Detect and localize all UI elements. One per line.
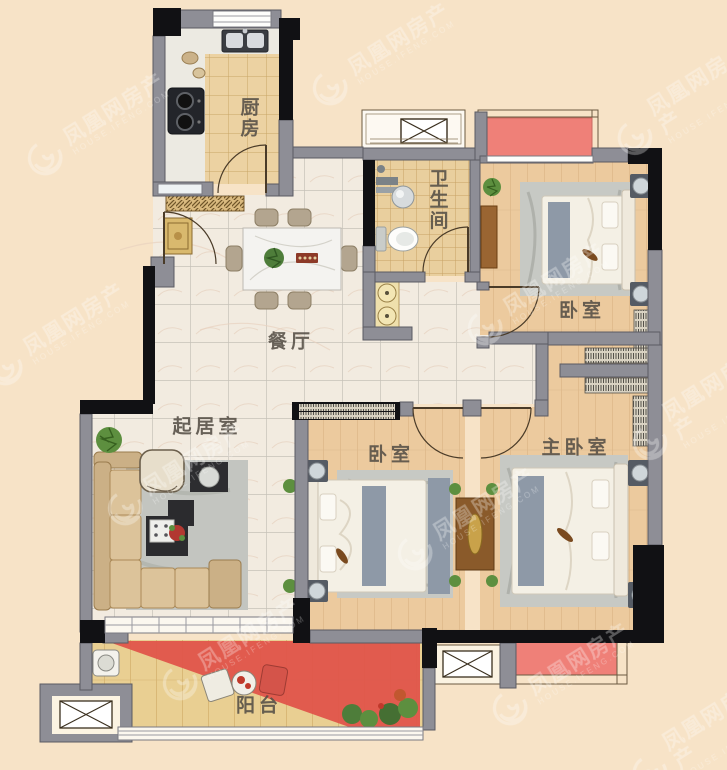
table-plant <box>264 248 284 268</box>
flower-bed-north <box>487 118 592 160</box>
room-label-bathroom: 卫生间 <box>424 169 451 232</box>
armchair <box>140 450 184 492</box>
dresser-north <box>481 206 497 268</box>
plant-north-bedroom <box>483 178 501 196</box>
ac-platform-top <box>362 110 465 148</box>
room-label-kitchen: 厨房 <box>235 97 262 139</box>
room-label-living: 起居室 <box>172 412 241 439</box>
vanity-basins <box>375 278 399 329</box>
room-label-dining: 餐厅 <box>268 327 314 354</box>
room-label-balcony: 阳台 <box>236 691 282 718</box>
ac-platform-bottom-right <box>432 645 500 684</box>
bed-north <box>520 174 652 306</box>
room-label-bedroom-north: 卧室 <box>559 296 605 323</box>
bed-middle <box>306 460 453 602</box>
entry-rug <box>164 218 192 254</box>
room-label-bedroom-middle: 卧室 <box>368 440 414 467</box>
washing-machine <box>93 650 119 676</box>
room-label-master-bedroom: 主卧室 <box>541 433 610 460</box>
entry-threshold <box>166 196 244 211</box>
floor-plan <box>0 0 727 770</box>
kitchen-stove <box>168 88 204 134</box>
side-table <box>190 462 228 492</box>
bathroom-toilet <box>376 227 418 251</box>
floor-plan-page: 厨房 卫生间 卧室 餐厅 起居室 卧室 主卧室 阳台 凤凰网房产 HOUSE.I… <box>0 0 727 770</box>
kitchen-sink <box>222 29 268 52</box>
plant-living <box>96 427 122 453</box>
